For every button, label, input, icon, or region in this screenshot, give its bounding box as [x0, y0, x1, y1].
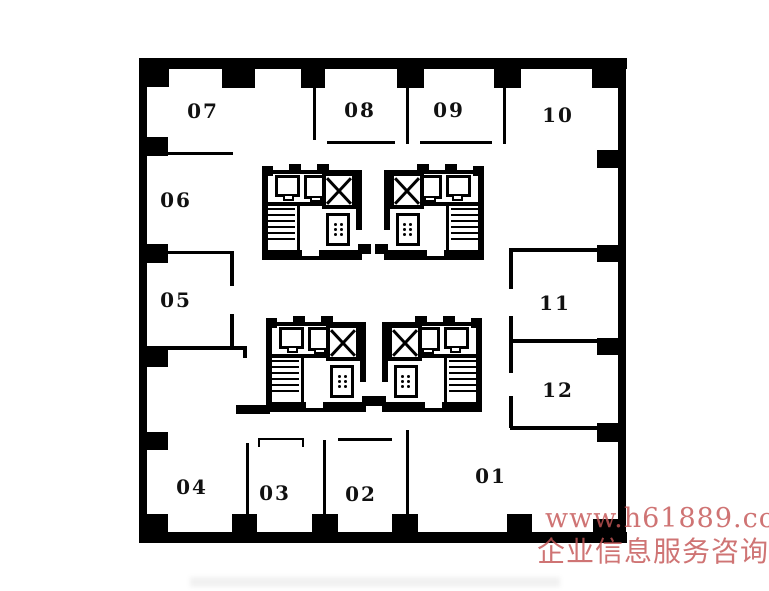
room-label-10: 10 [542, 103, 574, 127]
core-doorway [425, 402, 442, 408]
wall-12-bottom [510, 426, 597, 430]
core-unit-upper-left [262, 163, 362, 260]
watermark-caption: 企业信息服务咨询 [537, 530, 769, 570]
core-unit-upper-right [384, 163, 484, 260]
wall-05-bottom [139, 346, 247, 350]
room-label-12: 12 [542, 378, 574, 402]
core-foot [373, 396, 386, 406]
column-block [147, 350, 168, 367]
elevator-car-icon [394, 365, 418, 398]
column-block [147, 432, 168, 450]
core-corner [266, 318, 277, 328]
column-block [139, 58, 169, 87]
core-nub [415, 316, 427, 322]
core-doorway [427, 250, 444, 256]
elevator-shaft-icon [390, 172, 424, 209]
core-wall [420, 202, 478, 206]
core-unit-lower-right [382, 315, 482, 412]
toilet-fixture-icon [452, 194, 463, 201]
core-nub [317, 164, 329, 170]
elevator-shaft-icon [388, 324, 422, 361]
elevator-shaft-icon [322, 172, 356, 209]
core-nub [289, 164, 301, 170]
door-dimension-mark [258, 438, 304, 440]
core-wall [476, 322, 482, 406]
core-nub [321, 316, 333, 322]
room-label-08: 08 [344, 98, 376, 122]
room-label-02: 02 [345, 482, 377, 506]
door-dimension-tick [258, 438, 260, 447]
wall-11-top [510, 248, 597, 252]
core-nub [293, 316, 305, 322]
room-label-03: 03 [259, 481, 291, 505]
column-block [597, 150, 618, 168]
core-nub [445, 164, 457, 170]
wall-06-05 [147, 251, 233, 254]
room-label-11: 11 [539, 291, 571, 315]
room-label-07: 07 [187, 99, 219, 123]
core-wall [360, 322, 366, 382]
wall-top-beam [139, 58, 627, 69]
wall-08-09 [406, 69, 409, 144]
column-block [139, 514, 168, 543]
toilet-fixture-icon [287, 346, 298, 353]
room-label-05: 05 [160, 288, 192, 312]
wall-05-right-upper [230, 251, 234, 286]
column-block [232, 514, 257, 532]
room-label-04: 04 [176, 475, 208, 499]
wall-corridor-tail [236, 405, 270, 414]
core-wall [418, 354, 476, 358]
wall-05-corner [243, 346, 247, 358]
core-doorway [302, 250, 319, 256]
toilet-fixture-icon [450, 346, 461, 353]
core-wall [478, 170, 484, 254]
elevator-car-icon [396, 213, 420, 246]
column-block [597, 338, 618, 355]
core-foot [375, 244, 388, 254]
column-block [507, 514, 532, 532]
elevator-car-icon [330, 365, 354, 398]
room-label-01: 01 [475, 464, 507, 488]
column-block [592, 69, 618, 88]
wall-02-01 [406, 430, 409, 532]
elevator-car-icon [326, 213, 350, 246]
wall-02-left [323, 440, 326, 532]
scan-artifact [190, 577, 560, 587]
core-corner [473, 166, 484, 176]
core-nub [417, 164, 429, 170]
core-foot [358, 244, 371, 254]
wall-07-06 [147, 152, 233, 155]
wall-03-left [246, 443, 249, 532]
column-block [222, 69, 255, 88]
wall-right [618, 58, 626, 543]
core-wall [356, 170, 362, 230]
column-block [494, 69, 521, 88]
core-wall [266, 322, 272, 406]
room-label-09: 09 [433, 98, 465, 122]
column-block [392, 514, 418, 532]
room-label-06: 06 [160, 188, 192, 212]
wall-left [139, 58, 147, 543]
wall-12-left-upper [509, 341, 513, 373]
wall-02-top [338, 438, 392, 441]
column-block [397, 69, 424, 88]
door-dimension-tick [302, 438, 304, 447]
wall-09-bottom [420, 141, 492, 144]
wall-05-right-lower [230, 314, 234, 348]
wall-08-bottom [327, 141, 395, 144]
wall-11-12 [510, 339, 597, 343]
core-nub [443, 316, 455, 322]
core-doorway [306, 402, 323, 408]
wall-12-left-lower [509, 396, 513, 428]
wall-09-10 [503, 69, 506, 144]
core-unit-lower-left [266, 315, 366, 412]
wall-11-left-lower [509, 316, 513, 341]
floor-plan: 07 08 09 10 06 05 11 12 04 03 02 01 www.… [0, 0, 769, 591]
elevator-shaft-icon [326, 324, 360, 361]
wall-11-left-upper [509, 248, 513, 289]
wall-07-08 [313, 69, 316, 140]
toilet-fixture-icon [283, 194, 294, 201]
core-corner [262, 166, 273, 176]
column-block [597, 423, 618, 442]
column-block [597, 245, 618, 262]
core-wall [262, 170, 268, 254]
core-corner [471, 318, 482, 328]
